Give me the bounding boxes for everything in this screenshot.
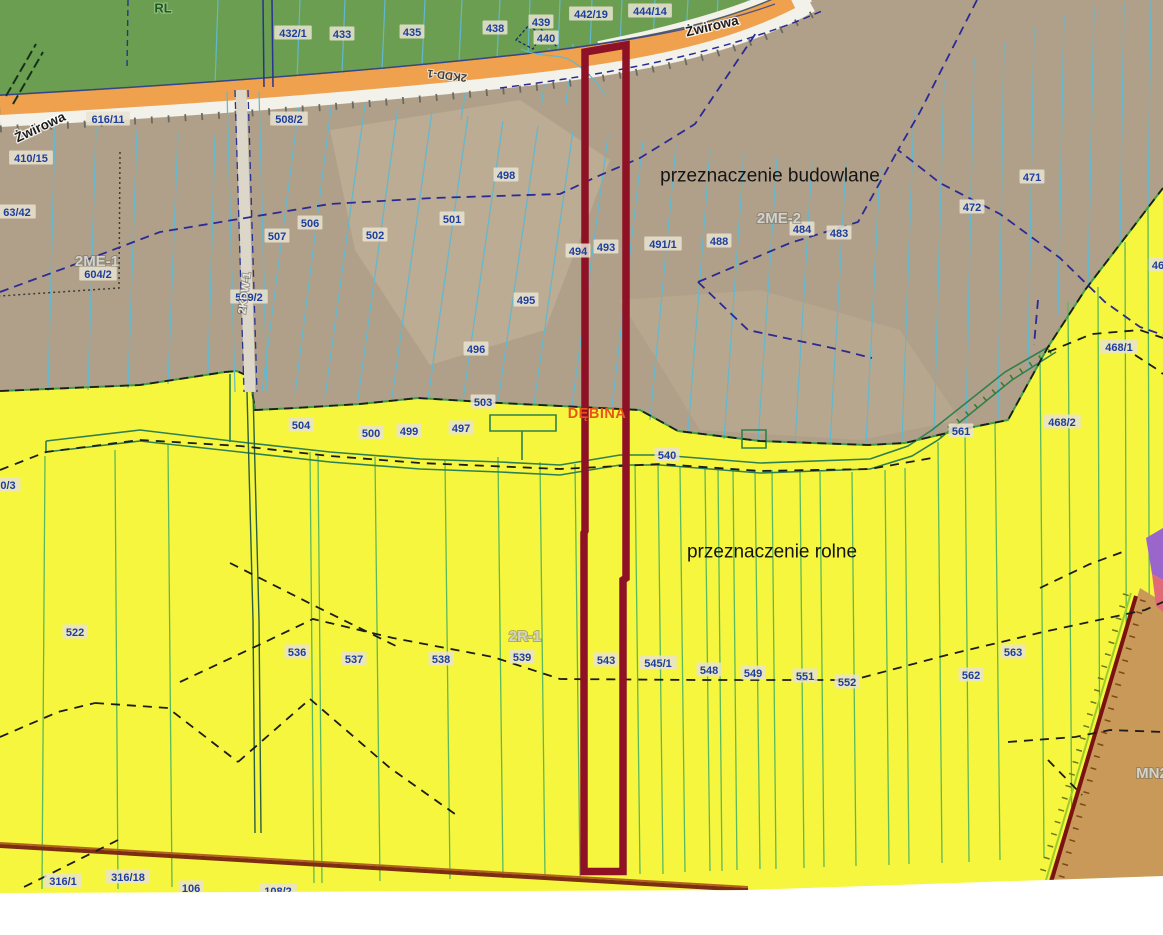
parcel-label: 108/2 <box>259 884 297 899</box>
parcel-label-text: 471 <box>1023 172 1041 184</box>
parcel-label-text: 504 <box>292 420 311 432</box>
parcel-label: 508/2 <box>270 112 308 127</box>
parcel-label-text: 495 <box>517 295 535 307</box>
parcel-label-text: 501 <box>443 214 461 226</box>
parcel-label-text: 503 <box>474 397 492 409</box>
parcel-label: 503 <box>471 395 496 410</box>
parcel-label: 496 <box>464 342 489 357</box>
parcel-label-text: 491/1 <box>649 239 677 251</box>
parcel-label-text: 316/1 <box>49 876 77 888</box>
parcel-label: 536 <box>285 645 310 660</box>
parcel-label: 0/3 <box>0 478 20 493</box>
zone-code-label-text: 2R-1 <box>509 628 542 645</box>
parcel-label: 439 <box>529 15 554 30</box>
parcel-label-text: 497 <box>452 423 470 435</box>
parcel-label: 316/18 <box>106 870 150 885</box>
parcel-label: 604/2 <box>79 267 117 282</box>
parcel-label-text: 522 <box>66 627 84 639</box>
parcel-label-text: 562 <box>962 670 980 682</box>
parcel-label: 495 <box>514 293 539 308</box>
parcel-label: 471 <box>1020 170 1045 185</box>
parcel-label-text: 483 <box>830 228 848 240</box>
parcel-label: 545/1 <box>639 656 677 671</box>
parcel-label-text: 438 <box>486 23 504 35</box>
zone-code-label: MN2 <box>1136 765 1163 782</box>
parcel-label-text: 472 <box>963 202 981 214</box>
parcel-label-text: 63/42 <box>3 207 31 219</box>
zone-designation-label-text: przeznaczenie rolne <box>687 542 857 563</box>
parcel-label: 562 <box>959 668 984 683</box>
parcel-label: 502 <box>363 228 388 243</box>
parcel-label-text: 506 <box>301 218 319 230</box>
zone-designation-label: przeznaczenie budowlane <box>660 166 880 187</box>
zoning-map-viewport[interactable]: RL616/11410/15432/1433435438439440442/19… <box>0 0 1163 935</box>
parcel-label: 501 <box>440 212 465 227</box>
parcel-label: 563 <box>1001 645 1026 660</box>
parcel-label: 538 <box>429 652 454 667</box>
parcel-label-text: 108/2 <box>264 886 292 898</box>
parcel-label: 498 <box>494 168 519 183</box>
zoning-map-canvas: RL616/11410/15432/1433435438439440442/19… <box>0 0 1163 935</box>
parcel-label-text: 563 <box>1004 647 1022 659</box>
parcel-label: 438 <box>483 21 508 36</box>
parcel-label: 616/11 <box>86 112 130 127</box>
parcel-label-text: 551 <box>796 671 814 683</box>
parcel-label: 483 <box>827 226 852 241</box>
parcel-label-text: 508/2 <box>275 114 303 126</box>
zone-designation-label-text: przeznaczenie budowlane <box>660 166 880 187</box>
parcel-label: 500 <box>359 426 384 441</box>
parcel-label-text: 106 <box>182 883 200 895</box>
locality-label: DĘBINA <box>568 406 627 422</box>
parcel-label-text: 540 <box>658 450 676 462</box>
parcel-label: 561 <box>949 424 974 439</box>
zone-code-label-text: 2ME-2 <box>757 210 801 227</box>
parcel-label: 106 <box>179 881 204 896</box>
parcel-label-text: 507 <box>268 231 286 243</box>
parcel-label: 537 <box>342 652 367 667</box>
parcel-label: 472 <box>960 200 985 215</box>
parcel-label: 551 <box>793 669 818 684</box>
zone-code-label-text: MN2 <box>1136 765 1163 782</box>
parcel-label-text: 0/3 <box>0 480 15 492</box>
parcel-label-text: 548 <box>700 665 718 677</box>
parcel-label: 433 <box>330 27 355 42</box>
parcel-label-text: 444/14 <box>633 6 668 18</box>
parcel-label: 497 <box>449 421 474 436</box>
parcel-label: 410/15 <box>9 151 53 166</box>
parcel-label-text: 499 <box>400 426 418 438</box>
parcel-label: 316/1 <box>44 874 82 889</box>
parcel-label: 504 <box>289 418 314 433</box>
parcel-label-text: 616/11 <box>91 114 124 126</box>
parcel-label-text: 442/19 <box>574 9 608 21</box>
parcel-label: 549 <box>741 666 766 681</box>
parcel-label-text: 502 <box>366 230 384 242</box>
parcel-label-text: 468/2 <box>1048 417 1076 429</box>
parcel-label: 494 <box>566 244 591 259</box>
parcel-label-text: 496 <box>467 344 485 356</box>
parcel-label: 539 <box>510 650 535 665</box>
parcel-label-text: 410/15 <box>14 153 48 165</box>
parcel-label: 468/1 <box>1100 340 1138 355</box>
parcel-label-text: 46 <box>1152 260 1163 272</box>
parcel-label: 522 <box>63 625 88 640</box>
parcel-label: 488 <box>707 234 732 249</box>
parcel-label: 63/42 <box>0 205 36 220</box>
parcel-label-text: 545/1 <box>644 658 672 670</box>
parcel-label: 507 <box>265 229 290 244</box>
forest-code-label-text: RL <box>154 1 171 16</box>
parcel-label-text: 543 <box>597 655 615 667</box>
parcel-label-text: 539 <box>513 652 531 664</box>
parcel-label: 499 <box>397 424 422 439</box>
parcel-label-text: 493 <box>597 242 615 254</box>
parcel-label: 46 <box>1149 258 1163 273</box>
parcel-label-text: 536 <box>288 647 306 659</box>
parcel-label-text: 316/18 <box>111 872 145 884</box>
parcel-label-text: 538 <box>432 654 450 666</box>
zone-code-label: 2ME-2 <box>757 210 801 227</box>
parcel-label-text: 498 <box>497 170 515 182</box>
parcel-label-text: 468/1 <box>1105 342 1133 354</box>
parcel-label-text: 494 <box>569 246 588 258</box>
parcel-label-text: 439 <box>532 17 550 29</box>
parcel-label: 435 <box>400 25 425 40</box>
zone-code-label: 2R-1 <box>509 628 542 645</box>
parcel-label: 548 <box>697 663 722 678</box>
parcel-label-text: 432/1 <box>279 28 307 40</box>
parcel-label-text: 604/2 <box>84 269 112 281</box>
locality-label-text: DĘBINA <box>568 406 627 422</box>
forest-code-label: RL <box>154 1 171 16</box>
parcel-label: 432/1 <box>274 26 312 41</box>
parcel-label-text: 488 <box>710 236 728 248</box>
parcel-label-text: 552 <box>838 677 856 689</box>
parcel-label: 468/2 <box>1043 415 1081 430</box>
parcel-label-text: 500 <box>362 428 380 440</box>
parcel-label: 540 <box>655 448 680 463</box>
parcel-label: 543 <box>594 653 619 668</box>
parcel-label: 493 <box>594 240 619 255</box>
parcel-label-text: 433 <box>333 29 351 41</box>
parcel-label: 440 <box>534 31 559 46</box>
parcel-label-text: 435 <box>403 27 421 39</box>
parcel-label-text: 561 <box>952 426 970 438</box>
parcel-label: 506 <box>298 216 323 231</box>
zone-designation-label: przeznaczenie rolne <box>687 542 857 563</box>
parcel-label-text: 440 <box>537 33 555 45</box>
parcel-label-text: 549 <box>744 668 762 680</box>
parcel-label: 442/19 <box>569 7 613 22</box>
parcel-label: 491/1 <box>644 237 682 252</box>
parcel-label: 444/14 <box>628 4 672 19</box>
parcel-label: 552 <box>835 675 860 690</box>
parcel-label-text: 537 <box>345 654 363 666</box>
